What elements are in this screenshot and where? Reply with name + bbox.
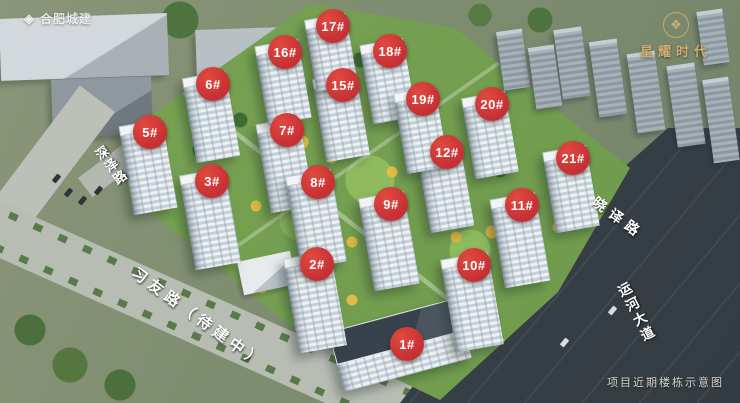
aerial-site-plan: 1#2#3#5#6#7#8#9#10#11#12#15#16#17#18#19#… <box>0 0 740 403</box>
building-number-badge-21: 21# <box>556 141 590 175</box>
building-number-badge-3: 3# <box>195 164 229 198</box>
building-number-badge-5: 5# <box>133 115 167 149</box>
building-number-badge-9: 9# <box>374 187 408 221</box>
building-number-badge-16: 16# <box>268 35 302 69</box>
building-number-badge-11: 11# <box>505 188 539 222</box>
building-number-badge-1: 1# <box>390 327 424 361</box>
project-logo-text: 星耀时代 <box>640 41 712 60</box>
project-logo: ❖ 星耀时代 <box>640 12 712 60</box>
building-number-badge-6: 6# <box>196 67 230 101</box>
caption-text: 项目近期楼栋示意图 <box>607 374 724 390</box>
diamond-logo-icon: ◈ <box>24 11 35 27</box>
building-number-badge-17: 17# <box>316 9 350 43</box>
building-number-badge-20: 20# <box>475 87 509 121</box>
building-number-badge-12: 12# <box>430 135 464 169</box>
flower-emblem-icon: ❖ <box>663 12 689 38</box>
developer-logo-text: 合肥城建 <box>40 10 92 27</box>
building-number-badge-10: 10# <box>457 248 491 282</box>
developer-logo: ◈ 合肥城建 <box>24 10 92 27</box>
building-number-badge-19: 19# <box>406 82 440 116</box>
building-number-badge-15: 15# <box>326 68 360 102</box>
building-number-badge-7: 7# <box>270 113 304 147</box>
building-number-badge-18: 18# <box>373 34 407 68</box>
building-number-badge-8: 8# <box>301 165 335 199</box>
building-number-badge-2: 2# <box>300 247 334 281</box>
